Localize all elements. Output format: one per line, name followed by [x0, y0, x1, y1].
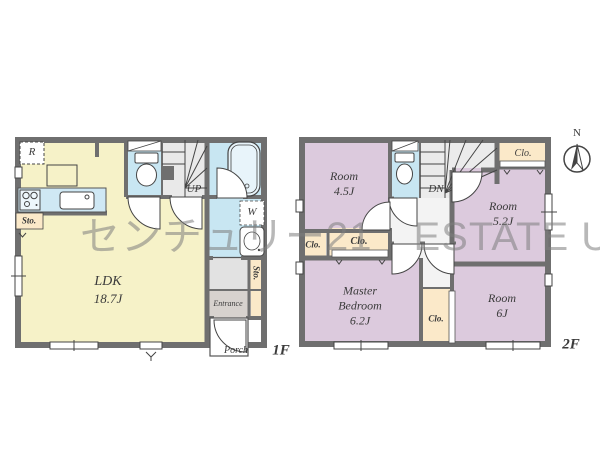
room-c-size: 6J	[496, 306, 507, 321]
entrance-label: Entrance	[213, 299, 242, 309]
master-bedroom-label: Master Bedroom 6.2J	[338, 284, 382, 329]
closet-wide-label: Clo.	[351, 236, 368, 249]
washer-label: W	[247, 206, 256, 220]
floor1-tag: 1F	[272, 342, 290, 361]
room-c-label: Room 6J	[488, 291, 516, 321]
ldk-size: 18.7J	[94, 291, 123, 307]
stove	[20, 190, 40, 210]
stairs-up-label: UP	[187, 183, 202, 197]
room-c-name: Room	[488, 291, 516, 306]
master-size: 6.2J	[350, 314, 370, 329]
room-a-size: 4.5J	[334, 184, 354, 199]
closet-small-label: Clo.	[305, 239, 320, 250]
room-a-label: Room 4.5J	[330, 169, 358, 199]
hall-1f	[207, 258, 251, 290]
stairs-dn-label: DN	[428, 183, 443, 197]
fridge-label: R	[29, 146, 36, 160]
storage-hall-label: Sto.	[250, 266, 261, 280]
compass-north-label: N	[573, 127, 581, 141]
master-name-1: Master	[343, 284, 377, 299]
porch-label: Porch	[224, 345, 248, 358]
vent-arrow	[146, 352, 156, 361]
compass-icon	[564, 144, 590, 172]
room-b-name: Room	[489, 199, 517, 214]
floor2-tag: 2F	[562, 336, 580, 355]
master-name-2: Bedroom	[338, 299, 382, 314]
washbasin	[240, 227, 264, 256]
floor1-plan	[11, 140, 264, 361]
floorplan-canvas: R LDK 18.7J UP W Sto. Sto. Entrance Porc…	[0, 0, 600, 450]
ldk-name: LDK	[94, 273, 121, 291]
kitchen-sink	[60, 192, 94, 209]
closet-top-label: Clo.	[515, 148, 532, 161]
room-b-label: Room 5.2J	[489, 199, 517, 229]
room-a-name: Room	[330, 169, 358, 184]
closet-mid-label: Clo.	[428, 313, 443, 324]
room-b-size: 5.2J	[493, 214, 513, 229]
stair-pillar	[162, 166, 174, 180]
storage-kitchen-label: Sto.	[22, 215, 36, 226]
ldk-label: LDK 18.7J	[94, 273, 123, 307]
